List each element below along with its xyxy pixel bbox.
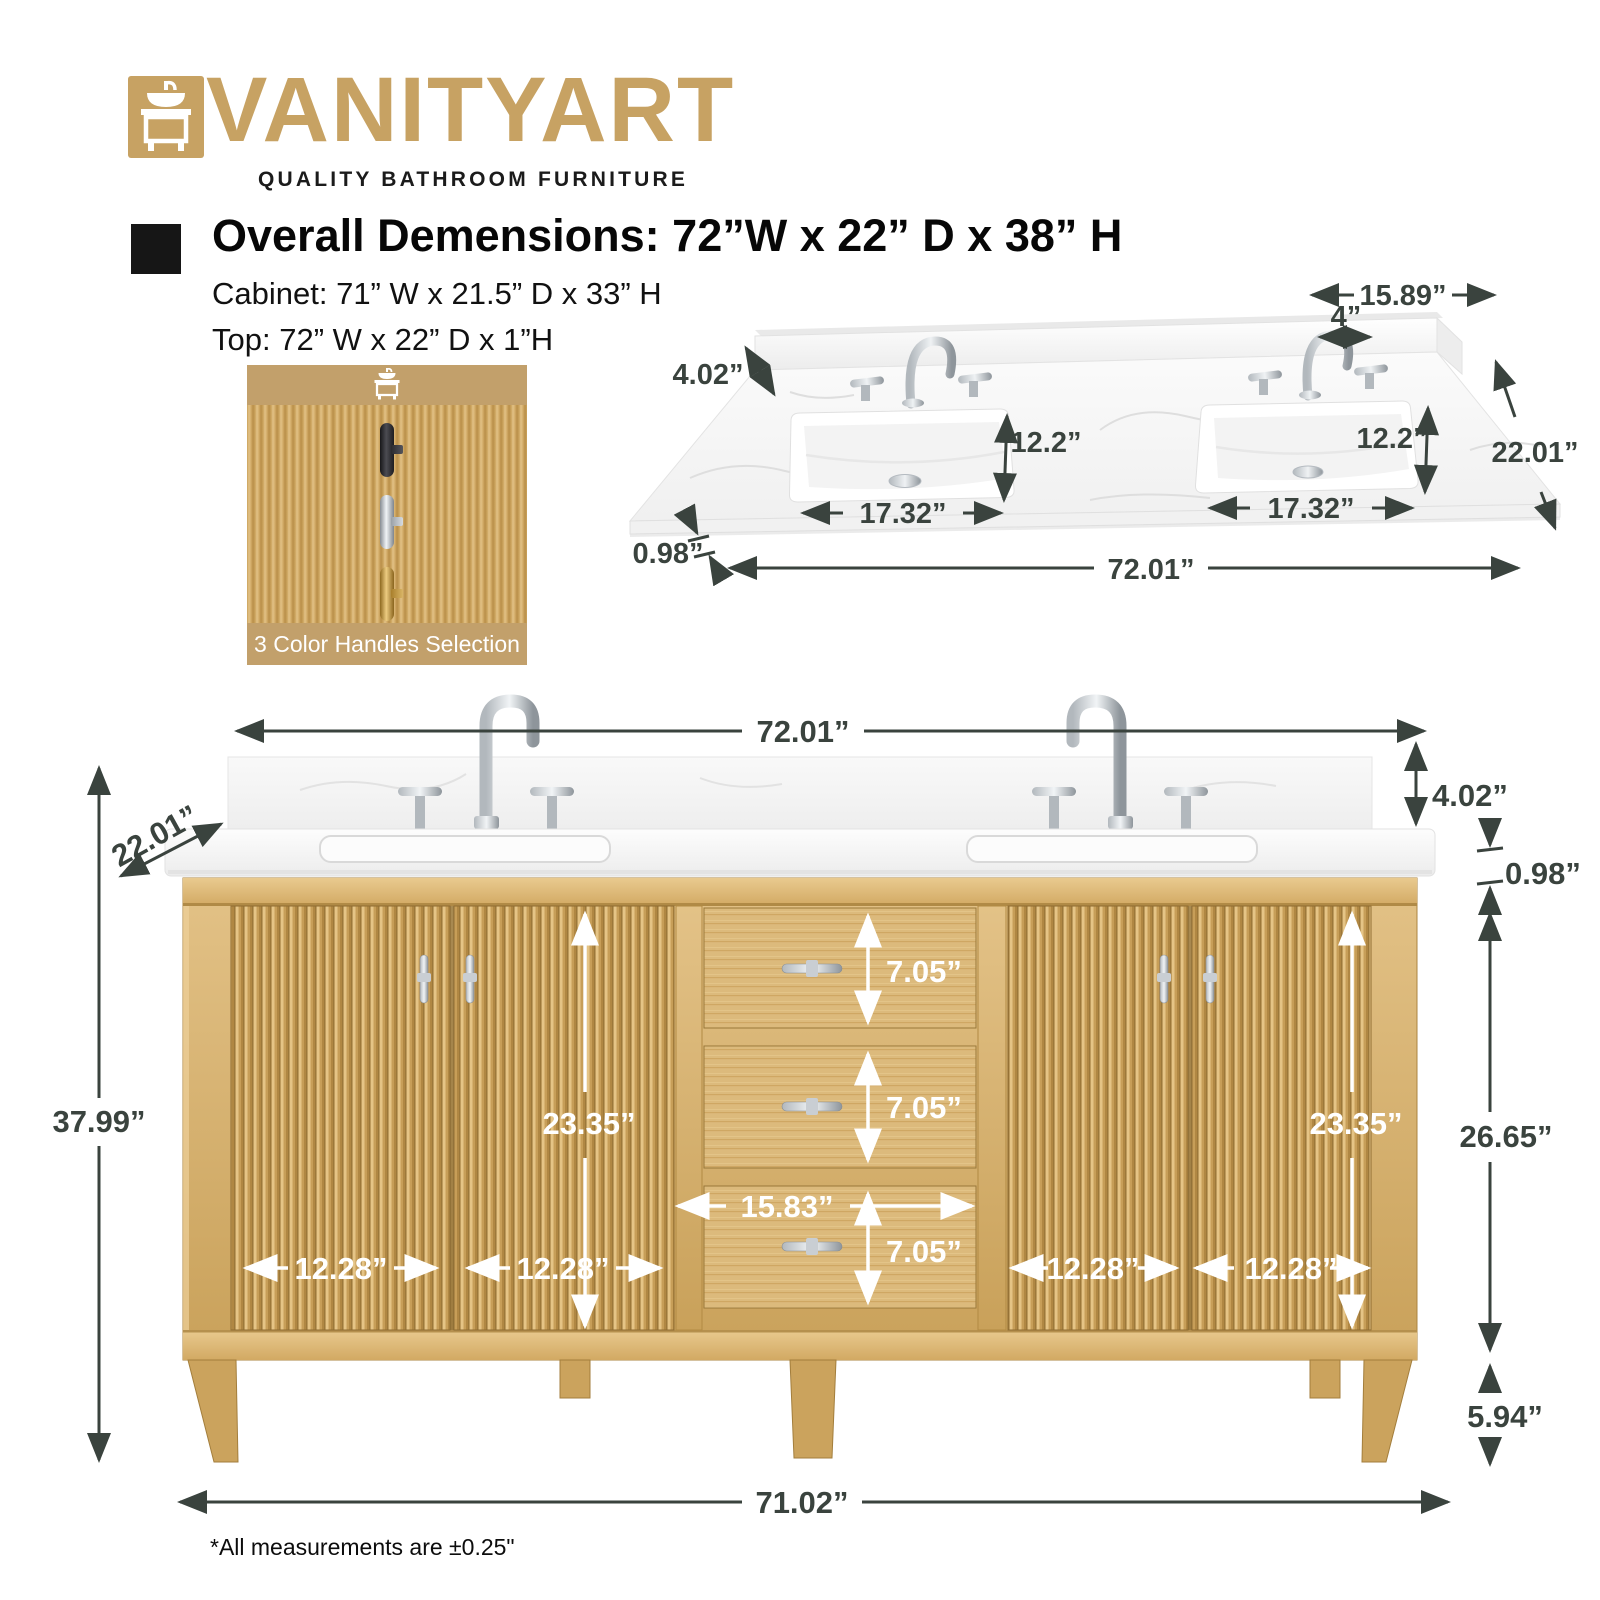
handle-card-wood-swatch xyxy=(247,405,527,623)
dim-label-door1-width: 12.28” xyxy=(294,1251,387,1286)
dim-label-door-height-right: 23.35” xyxy=(1309,1106,1402,1141)
top-dimensions-line: Top: 72” W x 22” D x 1”H xyxy=(212,322,553,358)
dim-label-hole-spacing: 4” xyxy=(1331,301,1362,333)
sink-left-top-view xyxy=(789,409,1014,502)
dim-label-top-thickness: 0.98” xyxy=(633,538,704,570)
dim-label-sink-depth-left: 12.2” xyxy=(1011,427,1082,459)
dim-label-backsplash-height-front: 4.02” xyxy=(1432,778,1508,813)
leg-mid-left xyxy=(560,1360,590,1398)
dim-label-door4-width: 12.28” xyxy=(1244,1251,1337,1286)
sink-left-front-view xyxy=(320,836,610,862)
countertop-top-view-diagram: 15.89” 4” 4.02” 12.2” 12.2” 22.01” 17.32… xyxy=(600,252,1600,592)
leg-front-right xyxy=(1362,1360,1412,1462)
dim-top-thickness-front xyxy=(1477,820,1503,912)
brand-name: VANITYART xyxy=(206,58,735,163)
vanity-icon xyxy=(366,368,408,402)
dim-label-cabinet-height: 26.65” xyxy=(1459,1119,1552,1154)
handle-card-header xyxy=(247,365,527,405)
brand-tagline: QUALITY BATHROOM FURNITURE xyxy=(258,168,688,192)
heading-bullet xyxy=(131,224,181,274)
countertop-bottom-edge xyxy=(168,870,1432,874)
stile-center-left xyxy=(676,906,702,1330)
drain-left xyxy=(889,475,921,488)
dim-label-overall-height: 37.99” xyxy=(52,1104,145,1139)
dim-label-drawer-width: 15.83” xyxy=(740,1189,833,1224)
cabinet-top-rail xyxy=(183,878,1417,906)
cabinet xyxy=(183,878,1417,1360)
dim-label-sink-depth-right: 12.2” xyxy=(1357,423,1428,455)
dim-label-drawer2-height: 7.05” xyxy=(886,1090,962,1125)
dim-label-base-width: 71.02” xyxy=(755,1485,848,1520)
leg-center xyxy=(790,1360,836,1458)
dim-label-sink-width-right: 17.32” xyxy=(1267,493,1354,525)
dim-label-top-width-front: 72.01” xyxy=(756,714,849,749)
left-edge-highlight xyxy=(183,906,189,1330)
dim-label-sink-width-left: 17.32” xyxy=(859,498,946,530)
door-seam-left xyxy=(450,906,454,1330)
handle-option-chrome xyxy=(380,495,394,549)
cabinet-dimensions-line: Cabinet: 71” W x 21.5” D x 33” H xyxy=(212,276,662,312)
dim-label-drawer1-height: 7.05” xyxy=(886,954,962,989)
vanity-front-view-diagram: 72.01” 22.01” 37.99” 4.02” 0.98” 26.65” xyxy=(40,630,1580,1580)
dim-label-drawer3-height: 7.05” xyxy=(886,1234,962,1269)
drain-right xyxy=(1293,466,1323,478)
dim-label-door3-width: 12.28” xyxy=(1046,1251,1139,1286)
dim-label-backsplash-height-top: 4.02” xyxy=(673,359,744,391)
handle-color-selection-card: 3 Color Handles Selection xyxy=(247,365,527,665)
dim-label-total-width-top: 72.01” xyxy=(1107,554,1194,586)
tolerance-footnote: *All measurements are ±0.25" xyxy=(210,1534,515,1561)
leg-mid-right xyxy=(1310,1360,1340,1398)
door-seam-right xyxy=(1188,906,1192,1330)
dim-label-leg-height: 5.94” xyxy=(1467,1399,1543,1434)
product-dimension-sheet: VANITYART QUALITY BATHROOM FURNITURE Ove… xyxy=(0,0,1600,1600)
leg-front-left xyxy=(188,1360,238,1462)
brand-logo-icon xyxy=(128,76,204,158)
cabinet-bottom-rail xyxy=(183,1330,1417,1360)
dim-label-door2-width: 12.28” xyxy=(516,1251,609,1286)
dim-label-total-depth: 22.01” xyxy=(1491,437,1578,469)
dim-label-faucet-span: 15.89” xyxy=(1359,280,1446,312)
legs xyxy=(188,1360,1412,1462)
handle-option-black xyxy=(380,423,394,477)
dim-label-door-height-left: 23.35” xyxy=(542,1106,635,1141)
dim-label-top-thickness-front: 0.98” xyxy=(1505,856,1580,891)
sink-right-front-view xyxy=(967,836,1257,862)
handle-option-gold xyxy=(380,567,394,621)
stile-center-right xyxy=(978,906,1006,1330)
